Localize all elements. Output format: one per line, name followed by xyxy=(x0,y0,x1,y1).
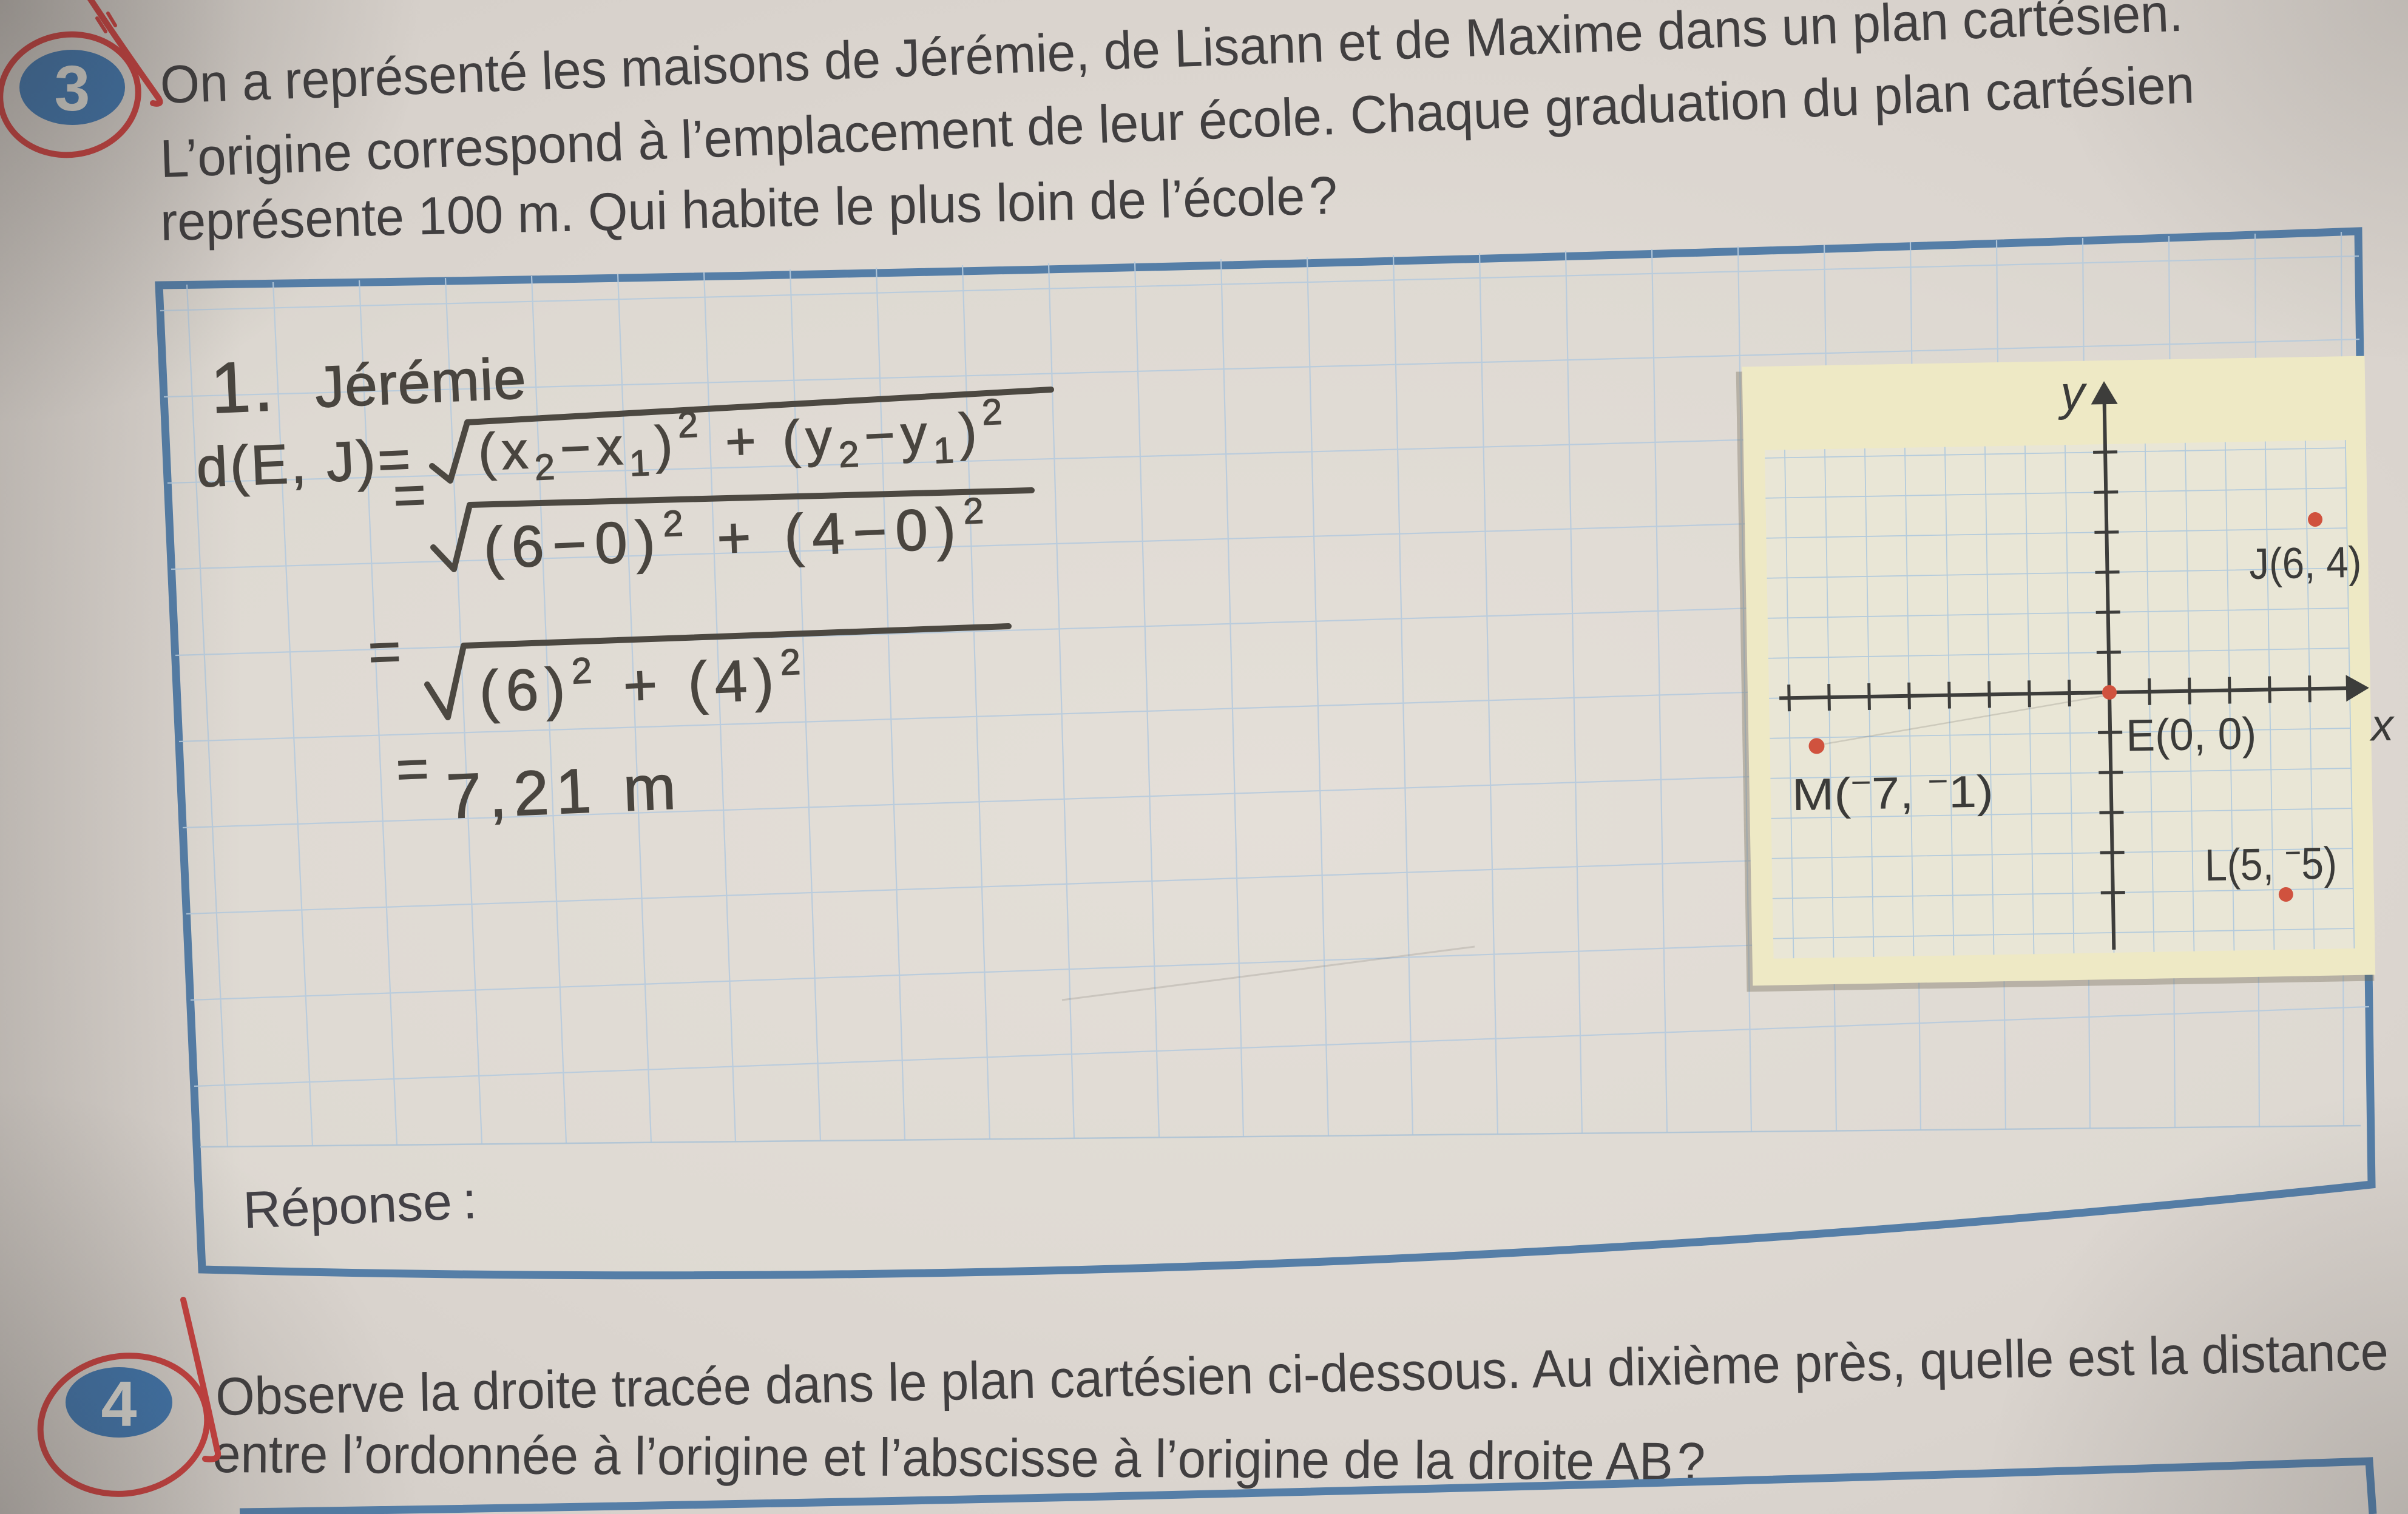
svg-text:=: = xyxy=(367,620,402,683)
svg-text:E(0, 0): E(0, 0) xyxy=(2126,708,2257,761)
svg-text:=: = xyxy=(392,464,427,527)
svg-text:7,21 m: 7,21 m xyxy=(445,752,684,832)
svg-text:L(5, −5): L(5, −5) xyxy=(2204,835,2338,891)
svg-text:y: y xyxy=(2057,366,2089,421)
svg-text:x: x xyxy=(2369,700,2395,751)
svg-text:entre l’ordonnée à l’origine e: entre l’ordonnée à l’origine et l’abscis… xyxy=(212,1424,1705,1492)
svg-text:=: = xyxy=(395,738,430,801)
svg-text:M(−7, −1): M(−7, −1) xyxy=(1791,763,1994,820)
svg-text:J(6, 4): J(6, 4) xyxy=(2249,538,2362,589)
